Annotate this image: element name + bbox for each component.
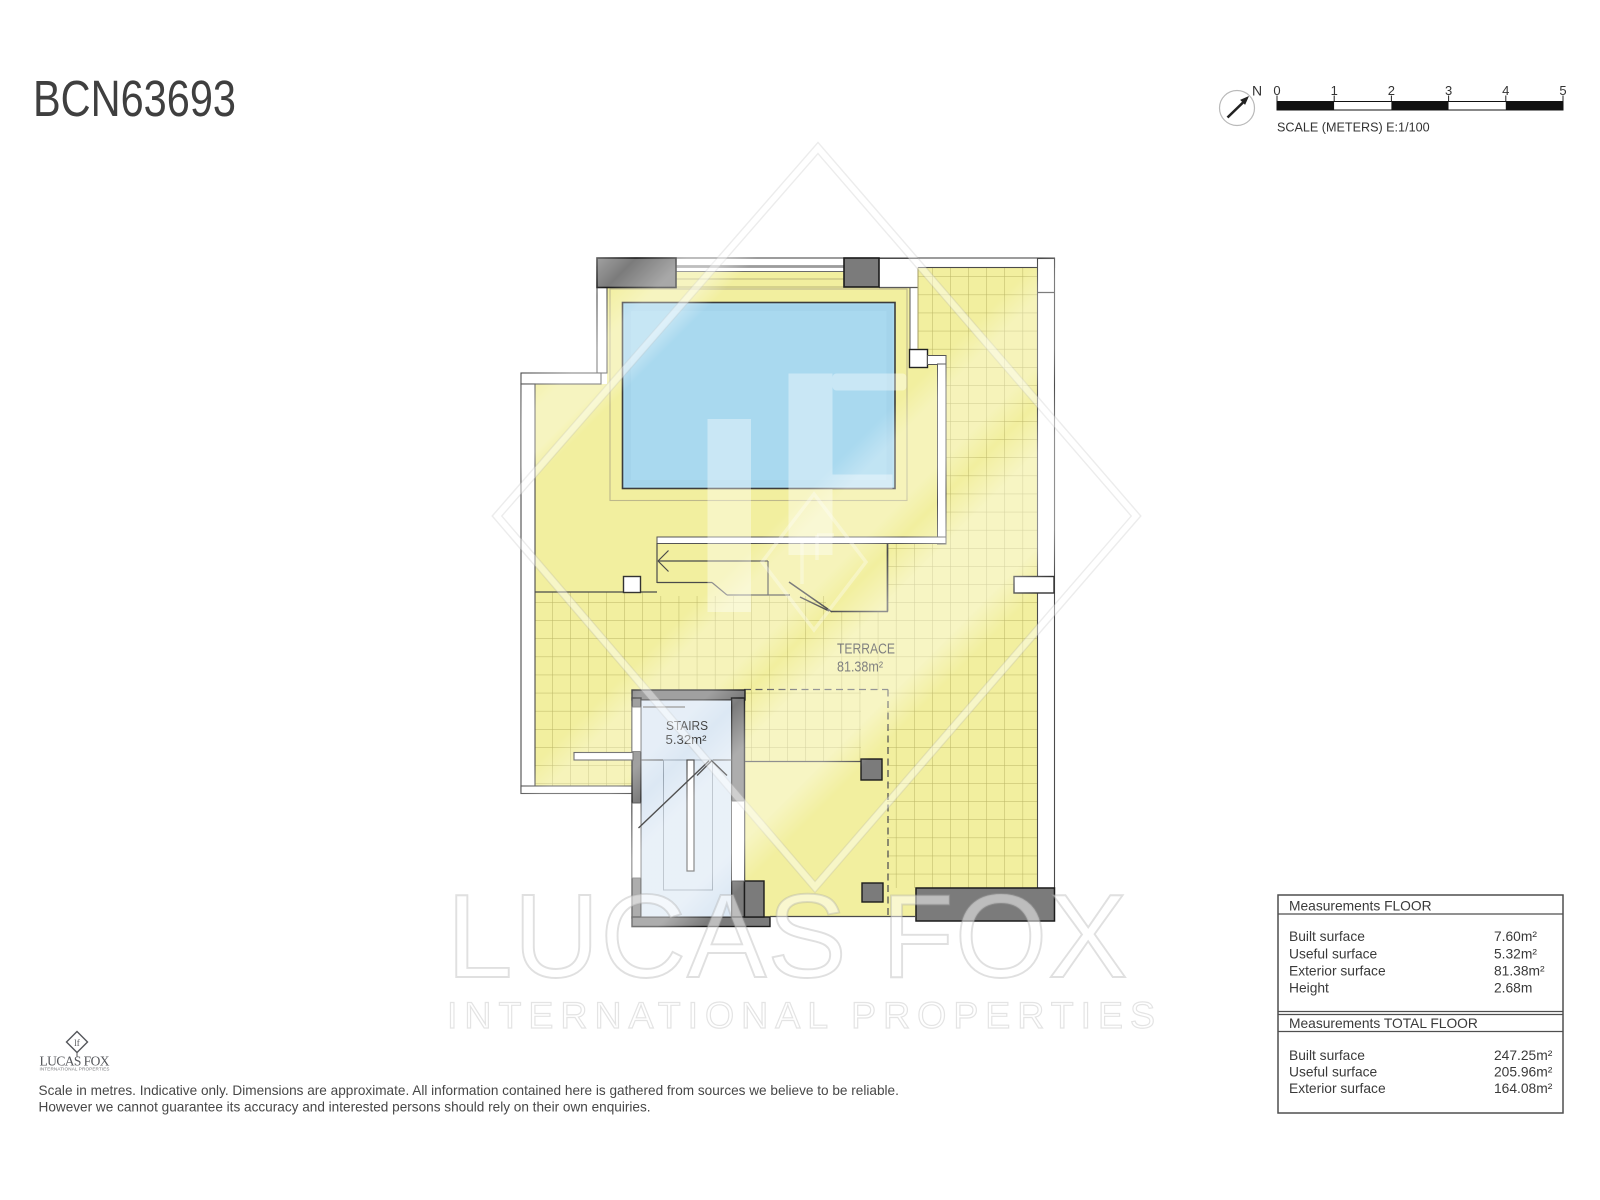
svg-text:7.60m²: 7.60m² bbox=[1494, 929, 1537, 944]
svg-text:Exterior surface: Exterior surface bbox=[1289, 964, 1386, 979]
svg-text:Measurements TOTAL FLOOR: Measurements TOTAL FLOOR bbox=[1289, 1016, 1478, 1031]
svg-text:LUCAS FOX: LUCAS FOX bbox=[447, 870, 1128, 1003]
svg-text:Useful surface: Useful surface bbox=[1289, 947, 1378, 962]
svg-text:205.96m²: 205.96m² bbox=[1494, 1065, 1553, 1080]
svg-text:Height: Height bbox=[1289, 981, 1329, 996]
svg-text:Built surface: Built surface bbox=[1289, 1048, 1365, 1063]
svg-text:247.25m²: 247.25m² bbox=[1494, 1048, 1553, 1063]
svg-text:164.08m²: 164.08m² bbox=[1494, 1081, 1553, 1096]
svg-text:Exterior surface: Exterior surface bbox=[1289, 1081, 1386, 1096]
svg-text:2.68m: 2.68m bbox=[1494, 981, 1532, 996]
svg-text:Useful surface: Useful surface bbox=[1289, 1065, 1378, 1080]
svg-text:81.38m²: 81.38m² bbox=[1494, 964, 1545, 979]
svg-text:BCN63693: BCN63693 bbox=[33, 70, 236, 127]
svg-text:N: N bbox=[1252, 83, 1262, 99]
svg-text:2: 2 bbox=[1388, 83, 1395, 98]
svg-text:lf: lf bbox=[74, 1038, 80, 1048]
svg-text:Built surface: Built surface bbox=[1289, 929, 1365, 944]
svg-text:Scale in metres. Indicative on: Scale in metres. Indicative only. Dimens… bbox=[39, 1083, 899, 1098]
svg-text:5.32m²: 5.32m² bbox=[1494, 947, 1537, 962]
svg-text:INTERNATIONAL PROPERTIES: INTERNATIONAL PROPERTIES bbox=[40, 1067, 110, 1072]
svg-text:However we cannot guarantee it: However we cannot guarantee its accuracy… bbox=[39, 1100, 651, 1115]
svg-text:SCALE (METERS) E:1/100: SCALE (METERS) E:1/100 bbox=[1277, 121, 1430, 135]
svg-text:Measurements FLOOR: Measurements FLOOR bbox=[1289, 899, 1432, 914]
svg-text:3: 3 bbox=[1445, 83, 1452, 98]
svg-text:0: 0 bbox=[1273, 83, 1280, 98]
svg-text:1: 1 bbox=[1331, 83, 1338, 98]
svg-text:4: 4 bbox=[1502, 83, 1509, 98]
svg-text:5: 5 bbox=[1559, 83, 1566, 98]
